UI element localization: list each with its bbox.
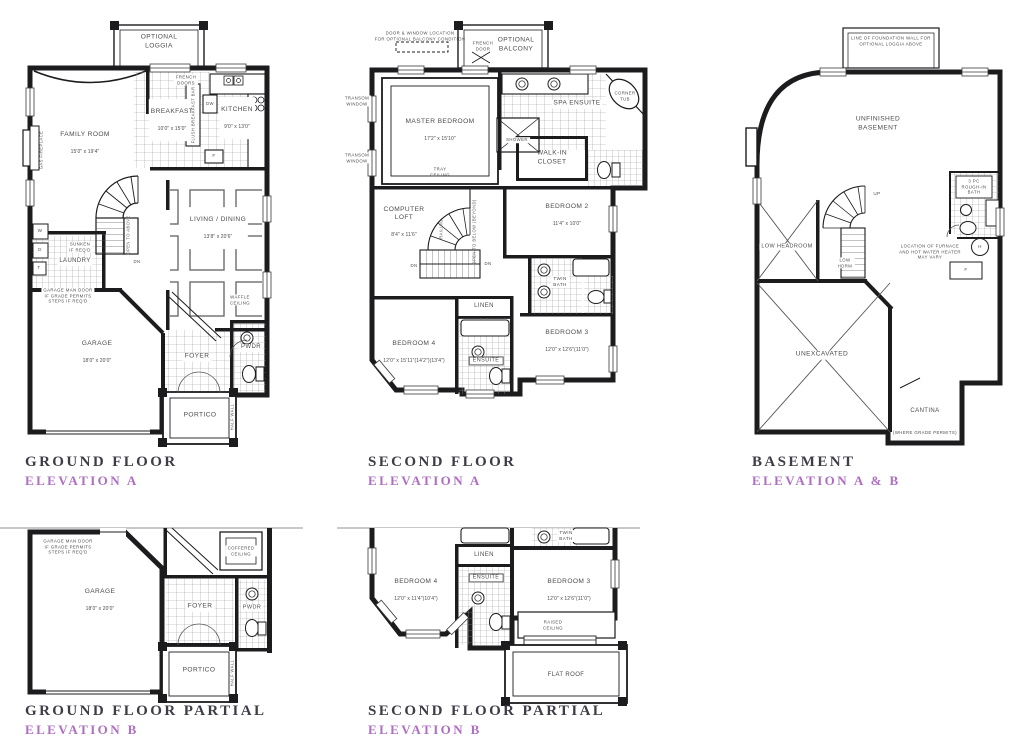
title-second-floor-partial: SECOND FLOOR PARTIAL ELEVATION B [368, 703, 605, 738]
room-dims: 11'4" x 10'0" [545, 221, 588, 228]
plan-elevation-text: ELEVATION B [368, 722, 605, 738]
room-name: LIVING / DINING [190, 216, 246, 225]
room-label-bedroom3-b: BEDROOM 3 12'0" x 12'6"(11'0") [547, 569, 590, 611]
appliance-washer: W [38, 228, 43, 234]
room-name: BEDROOM 3 [547, 578, 590, 587]
room-name: GARAGE [82, 340, 113, 349]
room-label-living-dining: LIVING / DINING 13'8" x 20'6" [188, 207, 248, 249]
room-dims: 9'0" x 13'0" [221, 124, 253, 131]
room-label-laundry: LAUNDRY [57, 258, 92, 266]
room-label-walk-in-closet: WALK-IN CLOSET [537, 149, 567, 166]
appliance-dishwasher: DW [206, 101, 214, 107]
room-label-garage-b: GARAGE 18'0" x 20'0" [85, 579, 116, 621]
room-label-garage: GARAGE 18'0" x 20'0" [82, 331, 113, 373]
note-dn-right: DN [484, 261, 491, 267]
room-label-unexcavated: UNEXCAVATED [794, 351, 850, 360]
room-label-pwdr: PWDR [239, 344, 263, 352]
title-basement: BASEMENT ELEVATION A & B [752, 454, 901, 489]
title-ground-floor-partial: GROUND FLOOR PARTIAL ELEVATION B [25, 703, 266, 738]
room-label-optional-balcony: OPTIONAL BALCONY [498, 36, 535, 53]
appliance-laundry-tub: T [37, 265, 40, 271]
room-name: GARAGE [85, 588, 116, 597]
plan-elevation-text: ELEVATION B [25, 722, 266, 738]
room-label-master-bedroom: MASTER BEDROOM 17'2" x 15'10" [406, 109, 475, 151]
room-label-linen-b: LINEN [472, 552, 496, 560]
room-name: BEDROOM 4 [383, 340, 444, 349]
note-waffle-ceiling: WAFFLE CEILING [228, 294, 252, 305]
note-railing: RAILING [439, 219, 444, 239]
note-furnace-location: LOCATION OF FURNACE AND HOT WATER HEATER… [897, 244, 963, 261]
room-label-breakfast: BREAKFAST 10'0" x 15'0" [149, 99, 195, 141]
room-name: BEDROOM 2 [545, 203, 588, 212]
fixture-shower: SHOWER [504, 137, 530, 143]
fixture-furnace: F [964, 267, 967, 273]
room-label-flat-roof: FLAT ROOF [548, 672, 585, 680]
fixture-corner-tub: CORNER TUB [614, 90, 635, 101]
room-label-rough-in-bath: 3 PC ROUGH-IN BATH [962, 179, 987, 196]
room-name: BEDROOM 4 [394, 578, 437, 587]
room-name: BEDROOM 3 [545, 329, 588, 338]
room-label-pwdr-b: PWDR [241, 604, 263, 611]
room-dims: 17'2" x 15'10" [406, 136, 475, 143]
room-name: COMPUTER LOFT [384, 205, 425, 222]
room-label-optional-loggia: OPTIONAL LOGGIA [141, 33, 178, 50]
floorplan-sheet: OPTIONAL LOGGIA FRENCH DOORS FAMILY ROOM… [0, 0, 1021, 744]
note-low-headroom: LOW HEADROOM [759, 243, 814, 250]
note-open-to-above: OPEN TO ABOVE [126, 215, 131, 254]
plan-elevation-text: ELEVATION A & B [752, 473, 901, 489]
plan-title-text: BASEMENT [752, 454, 901, 471]
room-label-foyer-b: FOYER [186, 603, 215, 612]
room-label-foyer: FOYER [183, 353, 212, 362]
note-balcony-condition: DOOR & WINDOW LOCATION FOR OPTIONAL BALC… [375, 30, 466, 41]
note-dn-left: DN [410, 263, 417, 269]
note-up: UP [873, 191, 880, 197]
room-dims: 12'0" x 12'6"(11'0") [547, 596, 590, 603]
room-label-portico: PORTICO [184, 412, 217, 421]
room-label-kitchen: KITCHEN 9'0" x 13'0" [219, 97, 255, 139]
room-label-ensuite: ENSUITE [469, 356, 504, 365]
room-dims: 15'0" x 19'4" [60, 149, 110, 156]
room-dims: 10'0" x 15'0" [151, 126, 193, 133]
basement-linework [746, 28, 1004, 443]
room-dims: 8'4" x 11'6" [384, 232, 425, 239]
second-partial-linework [368, 528, 627, 706]
note-garage-man-door-b: GARAGE MAN DOOR IF GRADE PERMITS STEPS I… [41, 539, 94, 556]
note-raised-ceiling: RAISED CEILING [543, 619, 563, 630]
note-flush-breakfast-bar: FLUSH BREAKFAST BAR [191, 87, 196, 144]
room-dims: 13'8" x 20'6" [190, 234, 246, 241]
note-transom-window-1: TRANSOM WINDOW [343, 95, 371, 106]
room-label-computer-loft: COMPUTER LOFT 8'4" x 11'6" [384, 197, 425, 247]
note-sunken: SUNKEN IF REQ'D [67, 241, 92, 252]
plan-title-text: GROUND FLOOR PARTIAL [25, 703, 266, 720]
room-dims: 12'0" x 11'4"(10'4") [394, 596, 437, 603]
note-low-hdrm: LOW HDRM [836, 257, 855, 268]
room-name: KITCHEN [221, 106, 253, 115]
room-label-linen: LINEN [472, 303, 496, 311]
note-coffered-ceiling: COFFERED CEILING [226, 545, 257, 556]
room-name: MASTER BEDROOM [406, 118, 475, 127]
room-dims: 12'0" x 15'11"(14'2")(13'4") [383, 358, 444, 365]
appliance-fridge: F [212, 153, 215, 159]
room-dims: 18'0" x 20'0" [82, 358, 113, 365]
note-foundation-line: LINE OF FOUNDATION WALL FOR OPTIONAL LOG… [851, 35, 931, 46]
room-label-portico-b: PORTICO [183, 667, 216, 676]
room-label-cantina: CANTINA [910, 408, 939, 416]
room-label-unfinished-basement: UNFINISHED BASEMENT [856, 115, 900, 132]
room-label-family-room: FAMILY ROOM 15'0" x 19'4" [60, 122, 110, 164]
note-dn: DN [133, 259, 140, 265]
note-half-wall-b: HALF WALL [230, 660, 235, 687]
note-gas-fireplace: GAS FIREPLACE [39, 131, 44, 169]
room-label-bedroom3: BEDROOM 3 12'0" x 12'6"(11'0") [545, 320, 588, 362]
room-label-bedroom4: BEDROOM 4 12'0" x 15'11"(14'2")(13'4") [383, 331, 444, 373]
note-tray-ceiling: TRAY CEILING [430, 166, 450, 177]
room-dims: 12'0" x 12'6"(11'0") [545, 347, 588, 354]
plan-elevation-text: ELEVATION A [368, 473, 516, 489]
room-label-ensuite-b: ENSUITE [469, 573, 504, 582]
note-garage-man-door: GARAGE MAN DOOR IF GRADE PERMITS STEPS I… [41, 288, 94, 305]
room-label-twin-bath: TWIN BATH [551, 276, 569, 288]
room-name: FAMILY ROOM [60, 131, 110, 140]
room-label-spa-ensuite: SPA ENSUITE [551, 100, 602, 109]
room-label-bedroom4-b: BEDROOM 4 12'0" x 11'4"(10'4") [394, 569, 437, 611]
title-ground-floor: GROUND FLOOR ELEVATION A [25, 454, 178, 489]
note-french-door: FRENCH DOOR [471, 40, 495, 51]
title-second-floor: SECOND FLOOR ELEVATION A [368, 454, 516, 489]
room-name: BREAKFAST [151, 108, 193, 117]
plan-title-text: SECOND FLOOR [368, 454, 516, 471]
plan-elevation-text: ELEVATION A [25, 473, 178, 489]
note-french-doors: FRENCH DOORS [174, 74, 198, 85]
note-transom-window-2: TRANSOM WINDOW [343, 152, 371, 163]
note-half-wall: HALF WALL [230, 404, 235, 431]
room-label-twin-bath-b: TWIN BATH [557, 530, 575, 542]
note-open-to-below: OPEN TO BELOW (BEYOND) [472, 199, 477, 264]
fixture-hot-water-heater: H [978, 244, 982, 250]
plan-title-text: SECOND FLOOR PARTIAL [368, 703, 605, 720]
room-dims: 18'0" x 20'0" [85, 606, 116, 613]
room-label-bedroom2: BEDROOM 2 11'4" x 10'0" [545, 194, 588, 236]
plan-title-text: GROUND FLOOR [25, 454, 178, 471]
note-where-grade-permits: (WHERE GRADE PERMITS) [893, 430, 957, 436]
appliance-dryer: D [38, 247, 42, 253]
